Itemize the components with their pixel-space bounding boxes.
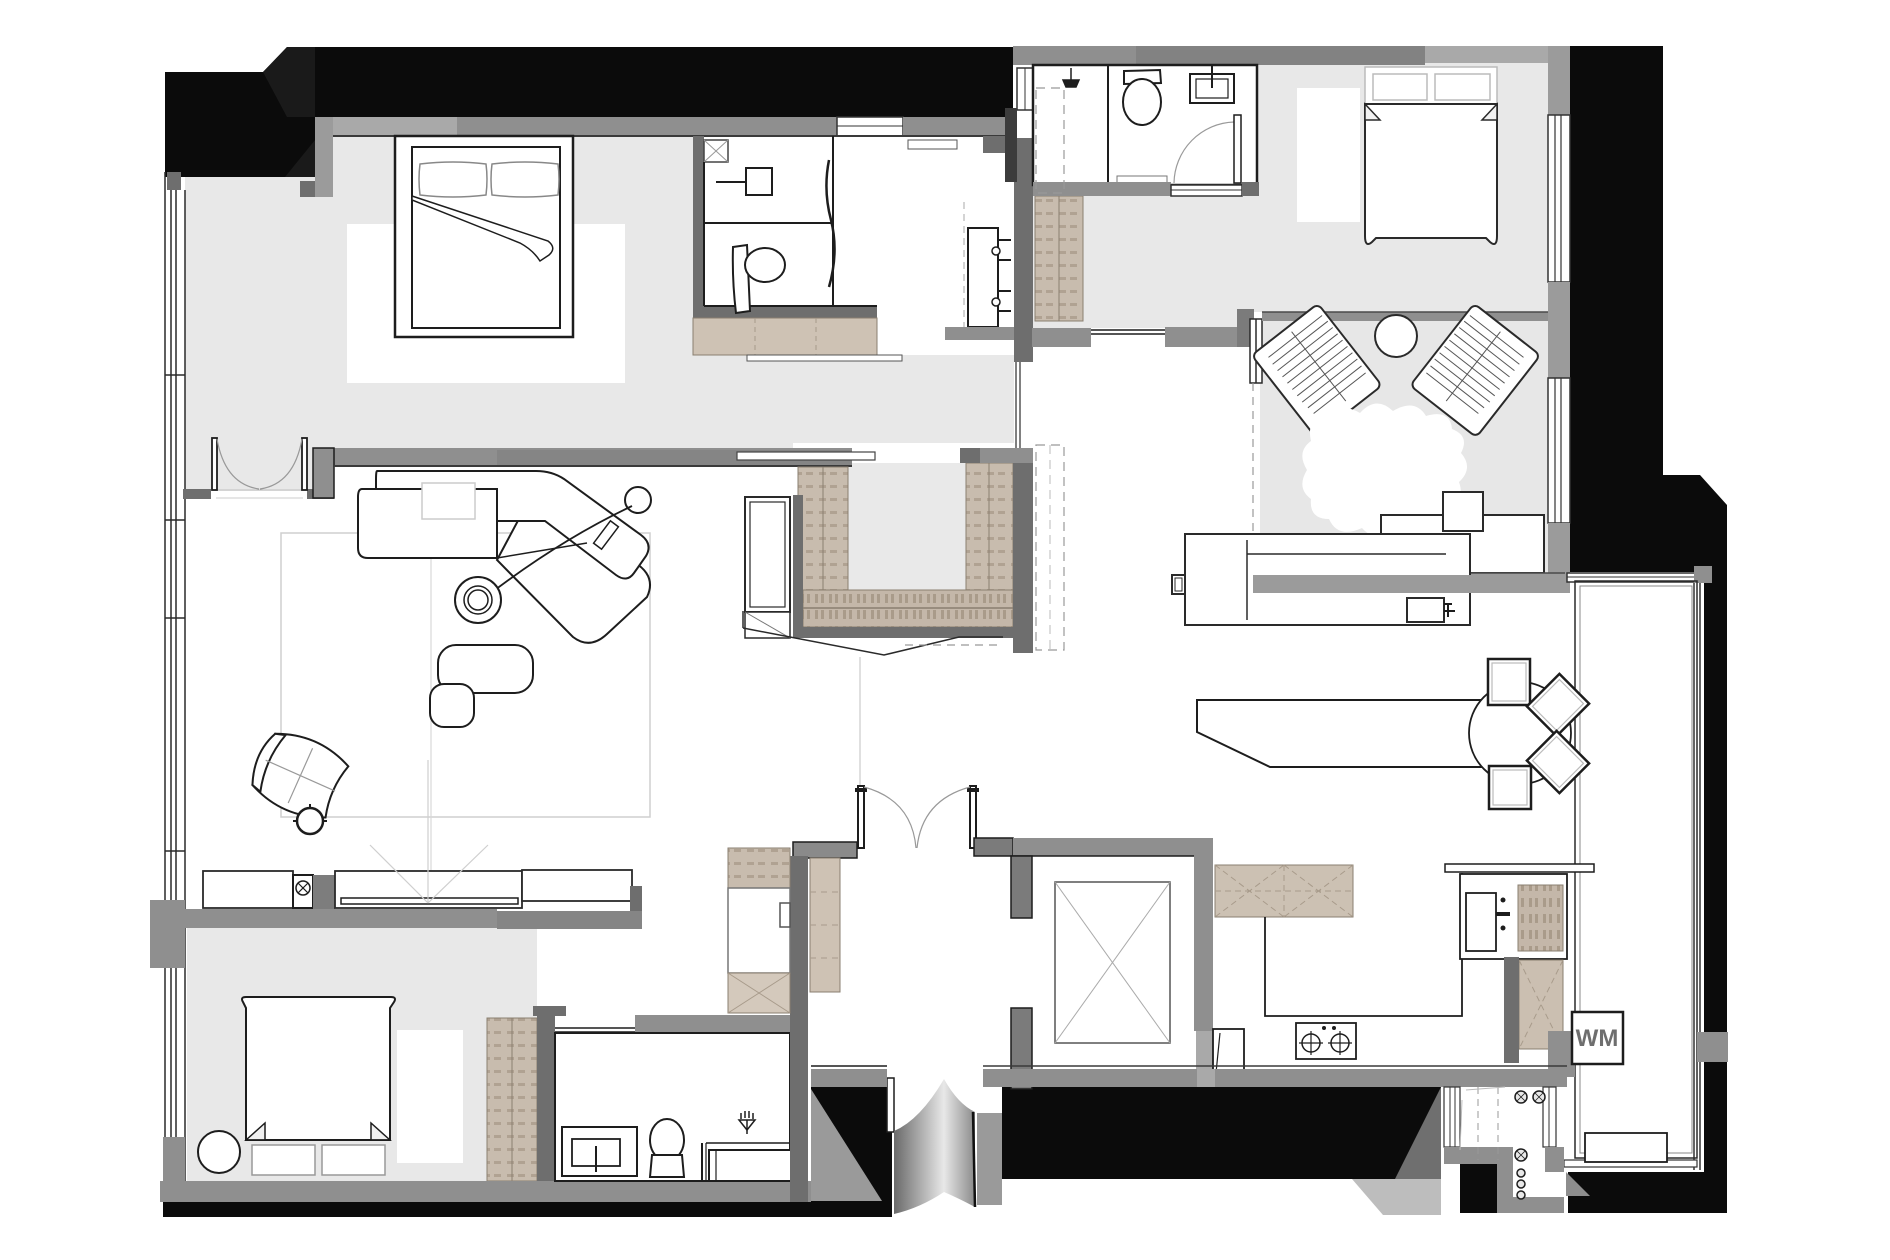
- svg-text:WM: WM: [1576, 1025, 1619, 1052]
